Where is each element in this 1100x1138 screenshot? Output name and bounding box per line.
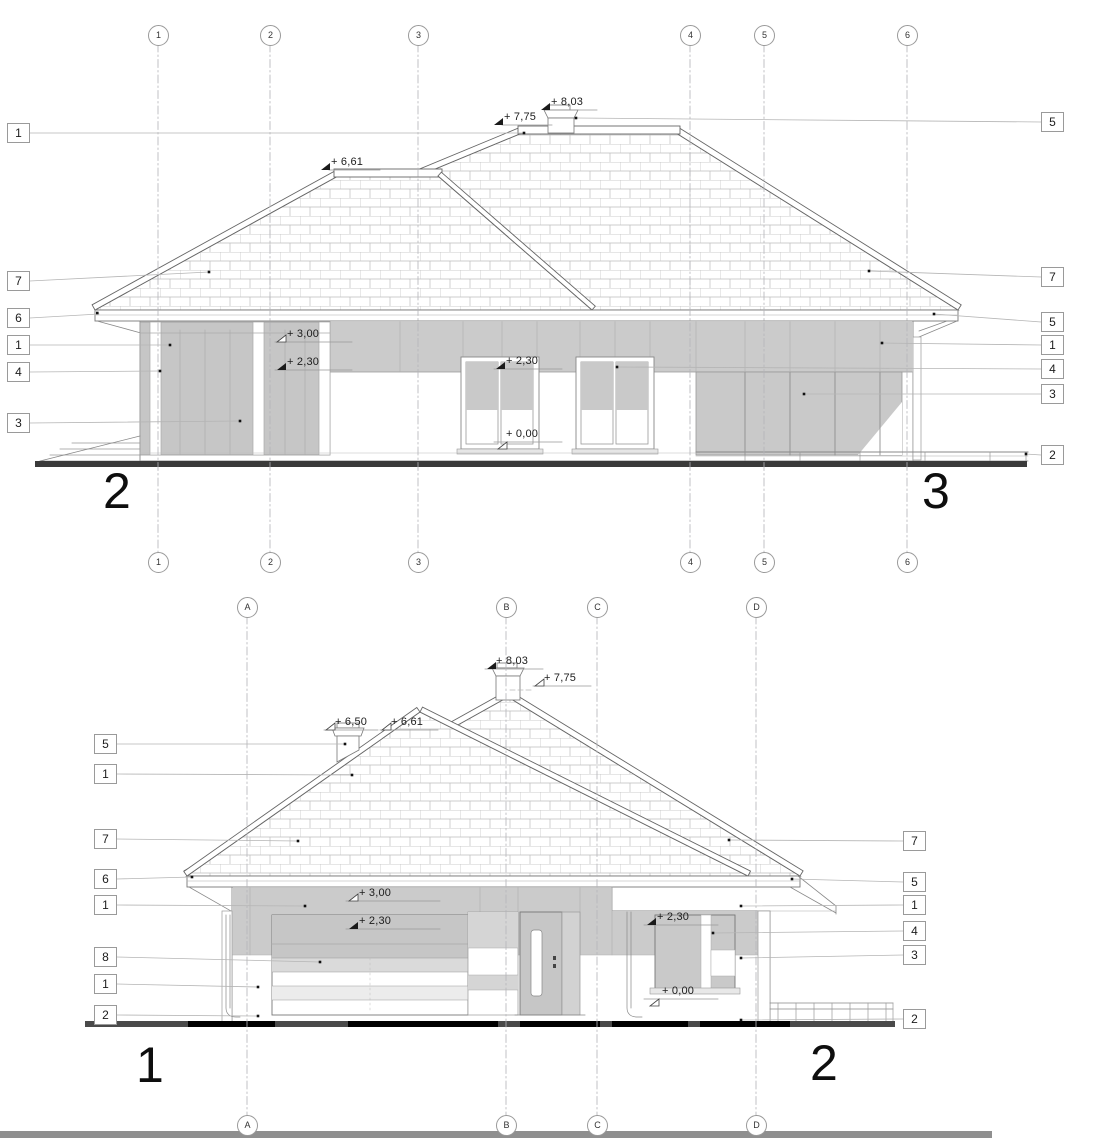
level-label: + 0,00 xyxy=(506,428,538,440)
callout-box: 4 xyxy=(7,362,30,382)
callout-box: 7 xyxy=(94,829,117,849)
garage-door xyxy=(272,915,468,1015)
grid-bubble-B: B xyxy=(496,1115,517,1136)
grid-bubble-1: 1 xyxy=(148,25,169,46)
grid-bubble-6: 6 xyxy=(897,552,918,573)
grid-bubble-4: 4 xyxy=(680,552,701,573)
callout-box: 6 xyxy=(94,869,117,889)
callout-box: 8 xyxy=(94,947,117,967)
grid-bubble-5: 5 xyxy=(754,25,775,46)
callout-box: 7 xyxy=(1041,267,1064,287)
callout-box: 4 xyxy=(903,921,926,941)
callout-box: 5 xyxy=(903,872,926,892)
level-label: + 2,30 xyxy=(506,355,538,367)
callout-box: 3 xyxy=(1041,384,1064,404)
level-label: + 7,75 xyxy=(544,672,576,684)
callout-box: 5 xyxy=(1041,112,1064,132)
callout-box: 5 xyxy=(1041,312,1064,332)
entrance-door xyxy=(515,912,585,1015)
level-label: + 3,00 xyxy=(359,887,391,899)
grid-bubble-3: 3 xyxy=(408,25,429,46)
grid-bubble-B: B xyxy=(496,597,517,618)
elevation-sheet: 1 2 3 4 5 6 1 2 3 4 5 6 A B C D A B C D … xyxy=(0,0,1100,1138)
level-label: + 7,75 xyxy=(504,111,536,123)
grid-bubble-D: D xyxy=(746,1115,767,1136)
level-label: + 0,00 xyxy=(662,985,694,997)
steps xyxy=(40,436,140,461)
callout-box: 2 xyxy=(94,1005,117,1025)
side-panel xyxy=(468,912,518,1015)
callout-box: 7 xyxy=(7,271,30,291)
grid-bubble-A: A xyxy=(237,1115,258,1136)
grid-bubble-2: 2 xyxy=(260,552,281,573)
grid-bubble-2: 2 xyxy=(260,25,281,46)
grid-bubble-4: 4 xyxy=(680,25,701,46)
right-window xyxy=(650,915,740,994)
page-edge-bar xyxy=(0,1131,992,1138)
level-label: + 6,61 xyxy=(331,156,363,168)
grid-bubble-C: C xyxy=(587,1115,608,1136)
callout-box: 3 xyxy=(903,945,926,965)
level-label: + 6,50 xyxy=(335,716,367,728)
grid-bubble-6: 6 xyxy=(897,25,918,46)
callout-box: 2 xyxy=(903,1009,926,1029)
ground-line xyxy=(35,461,1027,467)
grid-bubble-C: C xyxy=(587,597,608,618)
level-label: + 2,30 xyxy=(287,356,319,368)
elevation-number-right: 2 xyxy=(810,1034,838,1092)
level-label: + 2,30 xyxy=(359,915,391,927)
ridge-chimney xyxy=(492,663,524,700)
callout-box: 1 xyxy=(7,123,30,143)
callout-box: 1 xyxy=(94,895,117,915)
elevation-number-left: 2 xyxy=(103,462,131,520)
level-label: + 8,03 xyxy=(496,655,528,667)
level-label: + 2,30 xyxy=(657,911,689,923)
callout-box: 5 xyxy=(94,734,117,754)
grid-bubble-3: 3 xyxy=(408,552,429,573)
callout-box: 7 xyxy=(903,831,926,851)
elevation-number-right: 3 xyxy=(922,462,950,520)
grid-bubble-1: 1 xyxy=(148,552,169,573)
level-label: + 8,03 xyxy=(551,96,583,108)
callout-box: 1 xyxy=(1041,335,1064,355)
callout-box: 1 xyxy=(94,974,117,994)
grid-bubble-D: D xyxy=(746,597,767,618)
level-label: + 6,61 xyxy=(391,716,423,728)
callout-box: 1 xyxy=(94,764,117,784)
window-group-2 xyxy=(572,357,658,454)
callout-box: 2 xyxy=(1041,445,1064,465)
callout-box: 1 xyxy=(7,335,30,355)
bottom-elevation xyxy=(85,616,903,1116)
grid-bubble-A: A xyxy=(237,597,258,618)
callout-box: 3 xyxy=(7,413,30,433)
callout-box: 4 xyxy=(1041,359,1064,379)
grid-bubble-5: 5 xyxy=(754,552,775,573)
callout-box: 6 xyxy=(7,308,30,328)
elevation-number-left: 1 xyxy=(136,1036,164,1094)
callout-box: 1 xyxy=(903,895,926,915)
level-label: + 3,00 xyxy=(287,328,319,340)
